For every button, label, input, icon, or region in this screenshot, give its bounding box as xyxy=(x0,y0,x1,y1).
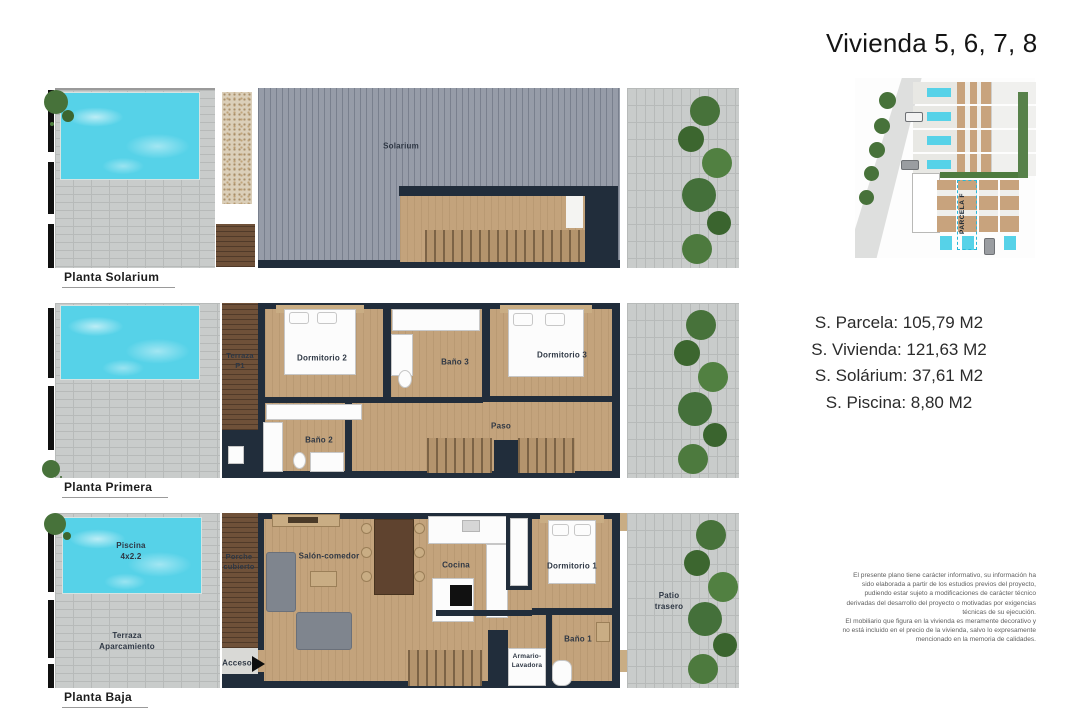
chair xyxy=(414,571,425,582)
building xyxy=(912,173,940,233)
room-label-dormitorio3: Dormitorio 3 xyxy=(537,351,587,362)
tree-icon xyxy=(859,190,874,205)
car-icon xyxy=(984,238,995,255)
room-label-paso: Paso xyxy=(491,422,511,433)
car-icon xyxy=(905,112,923,122)
tree-icon xyxy=(874,118,890,134)
measurement-line: S. Piscina: 8,80 M2 xyxy=(793,390,1005,417)
pool-icon xyxy=(927,160,951,169)
deck-strip xyxy=(620,650,627,672)
house-row xyxy=(913,130,1035,152)
room-label-acceso: Acceso xyxy=(222,659,252,670)
room-label-dormitorio2: Dormitorio 2 xyxy=(297,354,347,365)
pool-icon xyxy=(927,88,951,97)
pool-icon xyxy=(927,112,951,121)
coffee-table xyxy=(310,571,337,587)
kitchen-counter xyxy=(486,544,508,618)
porche-deck xyxy=(222,513,258,648)
tree-icon xyxy=(864,166,879,181)
tree-icon xyxy=(879,92,896,109)
sink xyxy=(462,520,480,532)
measurement-line: S. Parcela: 105,79 M2 xyxy=(793,310,1005,337)
house xyxy=(991,82,1036,104)
room-label-solarium: Solarium xyxy=(383,142,419,153)
disclaimer-paragraph: El mobiliario que figura en la vivienda … xyxy=(840,617,1036,645)
car-icon xyxy=(901,160,919,170)
plan-sheet: Solarium Planta Solarium Terraza P1 Dorm… xyxy=(0,0,1080,720)
room-label-bano3: Baño 3 xyxy=(441,358,469,369)
pool-icon xyxy=(940,236,952,250)
boundary-wall xyxy=(48,664,54,688)
measurement-line: S. Vivienda: 121,63 M2 xyxy=(793,337,1005,364)
legal-disclaimer: El presente plano tiene carácter informa… xyxy=(840,571,1036,645)
tree-icon xyxy=(44,513,66,535)
deck-strip xyxy=(620,513,627,531)
disclaimer-paragraph: El presente plano tiene carácter informa… xyxy=(840,571,1036,617)
chair xyxy=(361,523,372,534)
surface-measurements: S. Parcela: 105,79 M2 S. Vivienda: 121,6… xyxy=(793,310,1005,416)
wall xyxy=(436,610,532,616)
entry-arrow-icon xyxy=(252,656,265,672)
sofa xyxy=(296,612,352,650)
wall xyxy=(258,513,264,650)
room-label-terraza-aparcamiento: Terraza Aparcamiento xyxy=(99,631,155,653)
wall xyxy=(612,513,620,688)
tree-row-icon xyxy=(696,520,726,550)
house-row xyxy=(913,82,1035,104)
cooktop xyxy=(450,585,472,606)
room-label-dormitorio1: Dormitorio 1 xyxy=(547,562,597,573)
room-label-cocina: Cocina xyxy=(442,561,470,572)
house xyxy=(957,82,991,104)
house xyxy=(1000,180,1019,232)
room-label-porche: Porche cubierto xyxy=(223,552,254,572)
chair xyxy=(414,523,425,534)
room-label-salon: Salón-comedor xyxy=(299,552,360,563)
house xyxy=(937,180,956,232)
pillow xyxy=(574,524,591,536)
hedge xyxy=(1018,92,1028,178)
pool-icon xyxy=(1004,236,1016,250)
chair xyxy=(361,547,372,558)
room-label-armario: Armario- Lavadora xyxy=(512,653,543,671)
tv xyxy=(288,517,318,523)
house xyxy=(979,180,998,232)
tree-icon xyxy=(869,142,885,158)
house xyxy=(991,130,1036,152)
wall xyxy=(488,630,508,688)
hedge xyxy=(940,172,1020,178)
wardrobe xyxy=(510,518,528,586)
sofa xyxy=(266,552,296,612)
room-label-bano1: Baño 1 xyxy=(564,635,592,646)
house xyxy=(957,106,991,128)
parcel-label: PARCELA F xyxy=(959,182,973,246)
chair xyxy=(361,571,372,582)
house-row xyxy=(913,106,1035,128)
room-label-patio: Patio trasero xyxy=(655,591,684,613)
site-plan-thumbnail: PARCELA F xyxy=(855,78,1035,258)
stairs xyxy=(408,650,482,686)
house xyxy=(957,130,991,152)
measurement-line: S. Solárium: 37,61 M2 xyxy=(793,363,1005,390)
wall xyxy=(258,672,264,688)
chair xyxy=(414,547,425,558)
plan-caption: Planta Baja xyxy=(62,690,148,708)
house xyxy=(991,106,1036,128)
wall xyxy=(532,608,612,615)
pillow xyxy=(552,524,569,536)
shower xyxy=(552,660,572,686)
pool-icon xyxy=(927,136,951,145)
room-label-terraza: Terraza P1 xyxy=(226,351,254,371)
wall xyxy=(222,674,258,688)
room-label-piscina: Piscina 4x2.2 xyxy=(116,541,145,563)
dining-table xyxy=(374,519,414,595)
boundary-wall xyxy=(48,600,54,658)
room-label-bano2: Baño 2 xyxy=(305,436,333,447)
bath-cabinet xyxy=(596,622,610,642)
page-title: Vivienda 5, 6, 7, 8 xyxy=(826,28,1037,59)
